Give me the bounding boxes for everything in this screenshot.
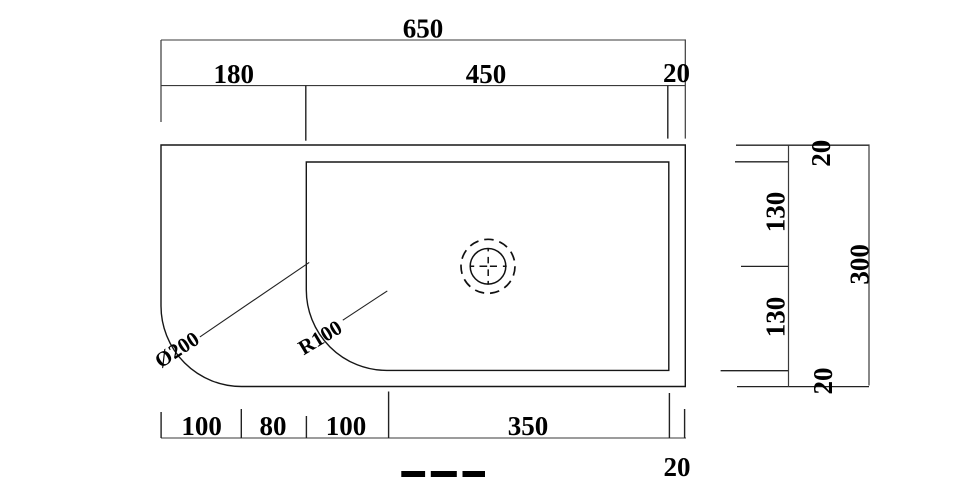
svg-text:20: 20: [808, 368, 838, 395]
svg-text:80: 80: [260, 411, 287, 441]
svg-text:100: 100: [326, 411, 367, 441]
svg-text:20: 20: [663, 58, 690, 88]
svg-text:350: 350: [508, 411, 549, 441]
svg-text:650: 650: [403, 14, 444, 44]
svg-text:300: 300: [844, 244, 874, 285]
svg-text:20: 20: [664, 452, 691, 477]
svg-text:20: 20: [806, 140, 836, 167]
svg-text:130: 130: [761, 297, 791, 338]
svg-text:100: 100: [181, 411, 222, 441]
svg-text:Ø200: Ø200: [150, 327, 203, 373]
svg-text:130: 130: [761, 192, 791, 233]
svg-text:450: 450: [466, 59, 507, 89]
svg-text:R100: R100: [294, 315, 346, 360]
svg-text:180: 180: [213, 59, 254, 89]
